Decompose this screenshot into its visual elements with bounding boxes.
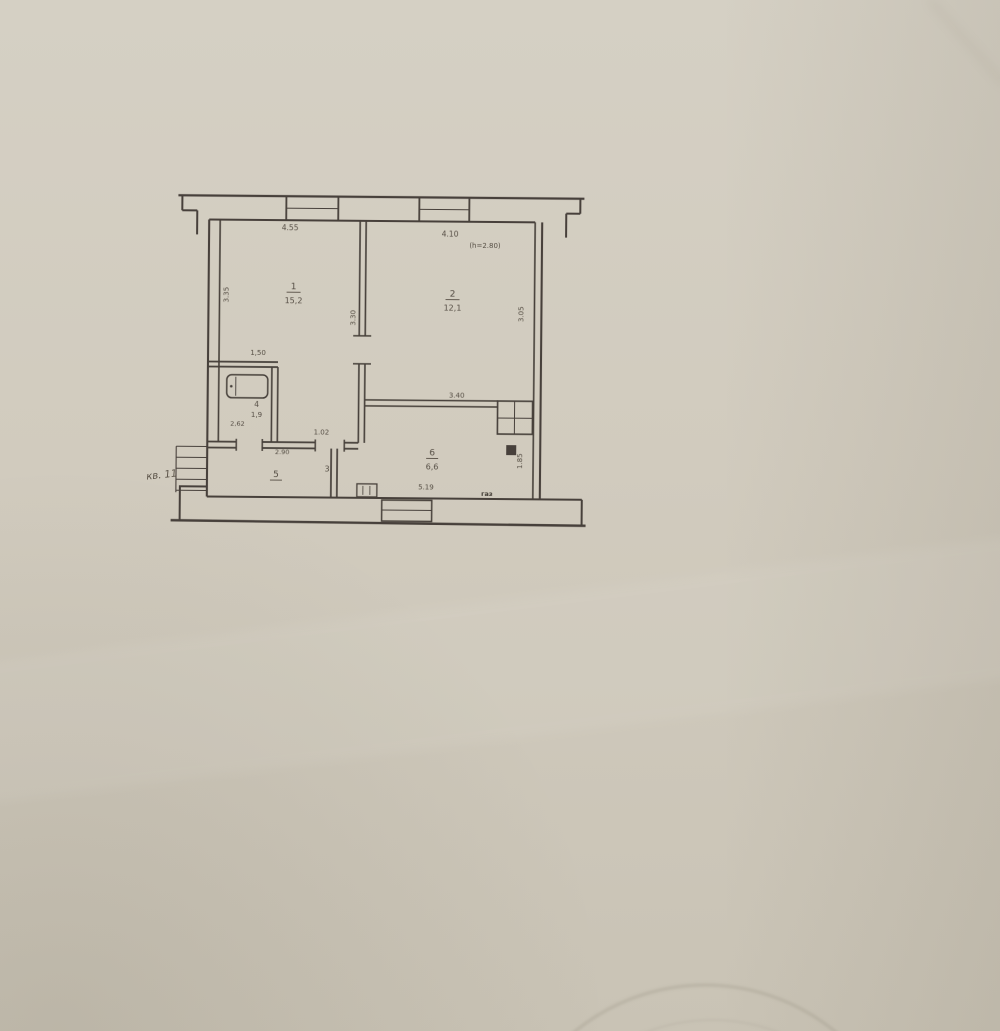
dim-bath-top: 1,50 (250, 349, 266, 357)
kitchen-number: 6 (429, 448, 435, 458)
gas-label: газ (481, 490, 493, 498)
dim-kitchen-right: 1.85 (516, 453, 524, 469)
bath-number: 4 (254, 400, 259, 409)
bath-area: 1,9 (251, 411, 262, 419)
dim-room1-depth: 3.35 (222, 287, 230, 303)
kitchen-area: 6,6 (426, 462, 439, 471)
hall-number: 5 (273, 470, 279, 480)
dim-room2-width: 4.10 (442, 230, 459, 239)
room2-area: 12,1 (444, 304, 462, 313)
dim-hall-door: 1.02 (314, 428, 330, 436)
room2-number: 2 (450, 290, 456, 300)
floor-plan-scan-svg: 4.55 4.10 (h=2.80) 1 15,2 2 12,1 6 6,6 5… (0, 0, 1000, 1031)
dim-kitchen-bottom: 5.19 (418, 483, 434, 491)
dim-room1-width: 4.55 (282, 223, 299, 232)
dim-kitchen-top: 3.40 (449, 392, 465, 400)
dim-bath-width: 2,62 (230, 420, 245, 428)
scanned-paper-page: 4.55 4.10 (h=2.80) 1 15,2 2 12,1 6 6,6 5… (0, 0, 1000, 1031)
room3-mark: 3 (324, 465, 329, 474)
room1-area: 15,2 (285, 296, 303, 305)
paper-shading-corner (0, 0, 1000, 1031)
gas-meter-icon (506, 445, 516, 455)
room1-number: 1 (291, 282, 297, 292)
dim-room2-depth: 3.05 (517, 306, 525, 322)
dim-divider-depth: 3.30 (349, 310, 357, 326)
dim-hall-wall: 2.90 (275, 448, 290, 456)
dim-room2-ceiling: (h=2.80) (469, 242, 501, 250)
